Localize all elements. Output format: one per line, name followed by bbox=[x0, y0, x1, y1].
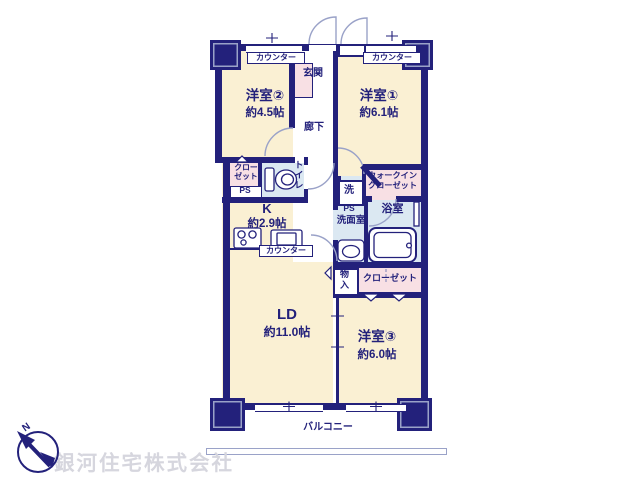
folding-door-mark bbox=[236, 156, 248, 162]
ps-label-center: PS bbox=[334, 204, 364, 213]
yoshitsu1-door-arc bbox=[338, 148, 364, 174]
bathtub-drain bbox=[407, 243, 412, 248]
room-label-kitchen: K bbox=[222, 202, 312, 216]
folding-door-mark bbox=[325, 267, 331, 279]
storage-label-1: 物 bbox=[334, 270, 355, 279]
room-label-senmenshitsu: 洗面室 bbox=[330, 216, 372, 226]
size-label-yoshitsu1: 約6.1帖 bbox=[327, 107, 431, 119]
counter-label-kitchen: カウンター bbox=[259, 245, 313, 257]
room-label-toilet: トイレ bbox=[293, 160, 302, 190]
folding-door-mark bbox=[363, 294, 379, 301]
toilet-tank-icon bbox=[265, 168, 274, 191]
counter-label-nw: カウンター bbox=[247, 52, 305, 64]
window-mark bbox=[386, 31, 398, 41]
toilet-bowl-inner bbox=[282, 174, 294, 185]
washbasin-bowl bbox=[343, 246, 360, 258]
room-label-rouka: 廊下 bbox=[292, 123, 336, 134]
size-label-yoshitsu2: 約4.5帖 bbox=[213, 107, 317, 119]
hall-ld-door-arc bbox=[311, 235, 337, 261]
stove-burner bbox=[249, 231, 256, 238]
stove-burner bbox=[238, 231, 245, 238]
closet-se-label: クローゼット bbox=[359, 274, 421, 283]
window-mark bbox=[283, 402, 295, 412]
storage-label-2: 入 bbox=[334, 281, 355, 290]
walkin-closet-label-2: クローゼット bbox=[364, 182, 421, 191]
stove-icon bbox=[234, 228, 261, 248]
ps-label-nw: PS bbox=[230, 186, 260, 195]
meter-box-door-arc bbox=[341, 18, 367, 44]
laundry-label: 洗 bbox=[338, 186, 360, 197]
window-mark bbox=[370, 402, 382, 412]
yoshitsu2-door-arc bbox=[265, 128, 293, 156]
folding-door-mark bbox=[391, 294, 407, 301]
walkin-closet-label-1: ウォークイン bbox=[364, 172, 421, 181]
room-label-yokushitsu: 浴室 bbox=[370, 204, 415, 216]
bathtub-inner bbox=[374, 233, 411, 258]
balcony-label: バルコニー bbox=[283, 423, 373, 434]
room-label-genkan: 玄関 bbox=[291, 69, 335, 80]
size-label-ld: 約11.0帖 bbox=[233, 326, 341, 339]
room-label-yoshitsu2: 洋室② bbox=[213, 89, 317, 103]
entrance-door-arc bbox=[309, 17, 336, 44]
floor-plan: 銀河住宅株式会社 bbox=[0, 0, 640, 480]
room-label-yoshitsu1: 洋室① bbox=[327, 89, 431, 103]
stove-burner bbox=[241, 240, 246, 245]
size-label-kitchen: 約2.9帖 bbox=[222, 218, 312, 230]
room-label-yoshitsu3: 洋室③ bbox=[329, 330, 425, 344]
size-label-yoshitsu3: 約6.0帖 bbox=[329, 349, 425, 361]
window-mark bbox=[266, 33, 278, 43]
closet-nw-label-2: ゼット bbox=[230, 173, 262, 181]
counter-label-ne: カウンター bbox=[363, 52, 421, 64]
room-label-ld: LD bbox=[233, 307, 341, 323]
toilet-door-arc bbox=[308, 163, 334, 189]
kitchen-sink-basin bbox=[277, 233, 296, 245]
closet-nw-label-1: クロー bbox=[230, 164, 262, 172]
